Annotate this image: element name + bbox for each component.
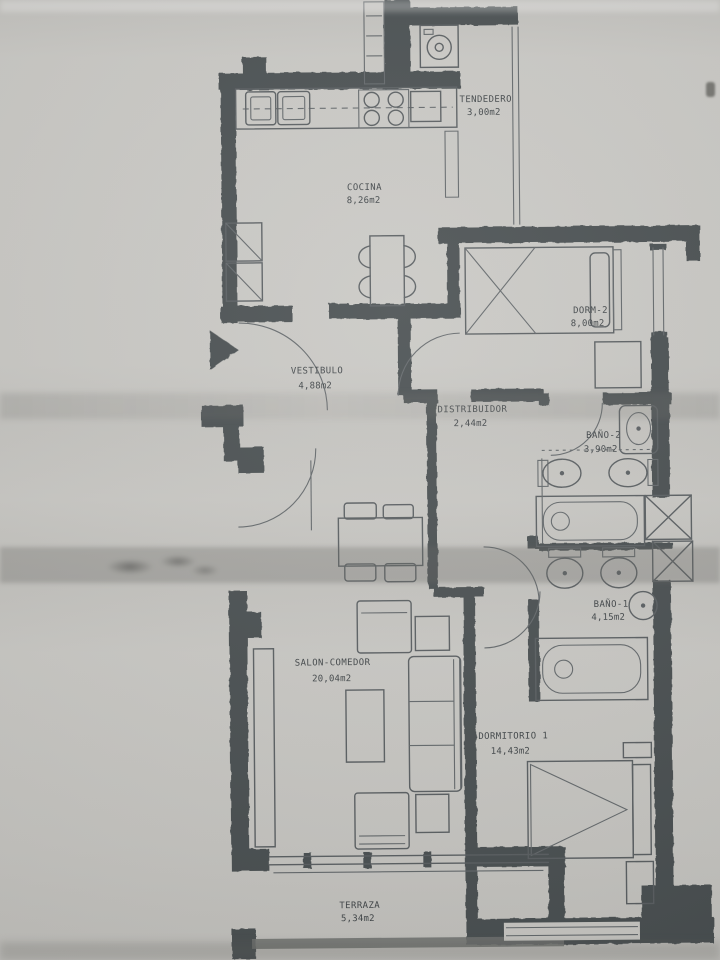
wall-right-upper	[651, 337, 670, 399]
armchair-bottom	[355, 793, 409, 849]
wall-bano1-left	[528, 599, 540, 701]
room-label-distribuidor: DISTRIBUIDOR	[437, 405, 507, 416]
washing-machine-icon	[420, 25, 458, 67]
bano1-bathtub-icon	[535, 637, 648, 700]
shaft-rungs	[366, 16, 382, 56]
linework	[224, 0, 696, 907]
dorm2-window	[653, 247, 664, 335]
side-table-bottom	[416, 794, 449, 832]
wall-distribuidor-top-a	[403, 389, 437, 402]
wall-top-right-bar	[406, 7, 518, 26]
window-mullion-4	[483, 851, 491, 867]
bano2-fixtures	[535, 402, 658, 546]
room-area-vestibulo: 4,88m2	[298, 381, 332, 391]
duct-shaft-crossed	[645, 495, 693, 581]
wall-window-left-block	[231, 849, 269, 871]
fridge-icon	[411, 91, 441, 121]
wall-window-tick-top	[650, 243, 666, 250]
tendedero-window	[512, 27, 520, 225]
room-area-bano1: 4,15m2	[591, 613, 625, 623]
bano1-washbasin-icon	[629, 591, 657, 619]
salon-furniture	[253, 600, 462, 850]
coffee-table	[346, 690, 385, 762]
room-label-cocina: COCINA	[347, 183, 382, 193]
bano2-bathtub-icon	[536, 496, 644, 547]
wall-corridor	[426, 402, 438, 588]
kitchen-hob-icon	[359, 90, 409, 128]
wall-salon-pillar	[235, 612, 261, 638]
scanned-floor-plan-photo: TENDEDERO 3,00m2 COCINA 8,26m2 DORM-2 8,…	[0, 0, 720, 960]
room-area-cocina: 8,26m2	[347, 196, 381, 206]
wall-distribuidor-top-b	[471, 388, 543, 402]
room-label-salon: SALON-COMEDOR	[295, 658, 371, 669]
room-label-dorm2: DORM-2	[573, 306, 608, 316]
room-area-salon: 20,04m2	[312, 674, 351, 684]
wall-corridor-stub	[434, 587, 484, 597]
wall-kitchen-left	[220, 73, 237, 323]
dorm2-nightstand	[595, 342, 641, 388]
wall-bottom-right-corner	[642, 885, 712, 936]
armchair-top	[357, 601, 411, 653]
side-table-top	[415, 616, 449, 650]
wall-bano2-top-a	[539, 393, 549, 405]
dorm1-bed	[527, 742, 653, 904]
room-area-distribuidor: 2,44m2	[454, 419, 488, 429]
floor-plan-svg: TENDEDERO 3,00m2 COCINA 8,26m2 DORM-2 8,…	[0, 0, 720, 960]
room-label-bano1: BAÑO-1	[594, 599, 629, 610]
sideboard	[253, 649, 275, 847]
room-area-dorm2: 8,00m2	[571, 319, 605, 329]
wall-dorm1-left	[463, 594, 478, 921]
bano1-bidet-icon	[601, 548, 637, 588]
bano2-left-line	[542, 458, 543, 543]
room-area-tendedero: 3,00m2	[467, 108, 501, 118]
kitchen-counter-centerline	[243, 107, 453, 109]
wall-kitchen-door-jamb	[328, 303, 348, 318]
sofa	[409, 656, 462, 791]
room-label-bano2: BAÑO-2	[586, 430, 621, 441]
room-label-dormitorio1: DORMITORIO 1	[478, 731, 548, 742]
wall-entry-outer-stub	[201, 405, 243, 427]
wall-dorm2-top	[438, 225, 700, 243]
dining-table-set	[338, 502, 423, 582]
room-label-vestibulo: VESTIBULO	[291, 366, 343, 376]
bano1-toilet-icon	[547, 548, 583, 588]
room-label-terraza: TERRAZA	[339, 901, 380, 911]
kitchen-table-set	[359, 236, 416, 306]
wall-kitchen-bottom-left	[220, 306, 292, 323]
wall-window-tick-bottom	[651, 331, 667, 338]
shaft-outline	[364, 2, 385, 84]
room-area-bano2: 3,90m2	[584, 445, 618, 455]
wall-top-right-stub	[686, 241, 700, 261]
entrance-arrow-icon	[210, 330, 239, 370]
dorm1-window-opening	[504, 922, 640, 941]
dining-alcove-wall-line	[311, 460, 312, 530]
room-area-dormitorio1: 14,43m2	[491, 747, 530, 757]
room-area-terraza: 5,34m2	[341, 914, 375, 924]
wall-right-mid	[651, 399, 670, 497]
wall-dorm2-left	[447, 239, 460, 305]
window-mullion-1	[303, 852, 311, 868]
room-labels: TENDEDERO 3,00m2 COCINA 8,26m2 DORM-2 8,…	[288, 94, 631, 925]
window-mullion-2	[363, 852, 371, 868]
window-mullion-3	[423, 851, 431, 867]
bano1-door-arc	[484, 546, 539, 601]
bano1-fixtures	[484, 545, 658, 701]
wall-vestibulo-salon-block	[238, 447, 264, 473]
bano2-toilet-icon	[538, 459, 581, 487]
room-label-tendedero: TENDEDERO	[459, 95, 511, 105]
wall-chimney-stub	[242, 57, 266, 75]
wall-right-lower	[653, 580, 674, 887]
bano2-bidet-icon	[609, 458, 658, 486]
tendedero-door-leaf	[445, 131, 459, 197]
